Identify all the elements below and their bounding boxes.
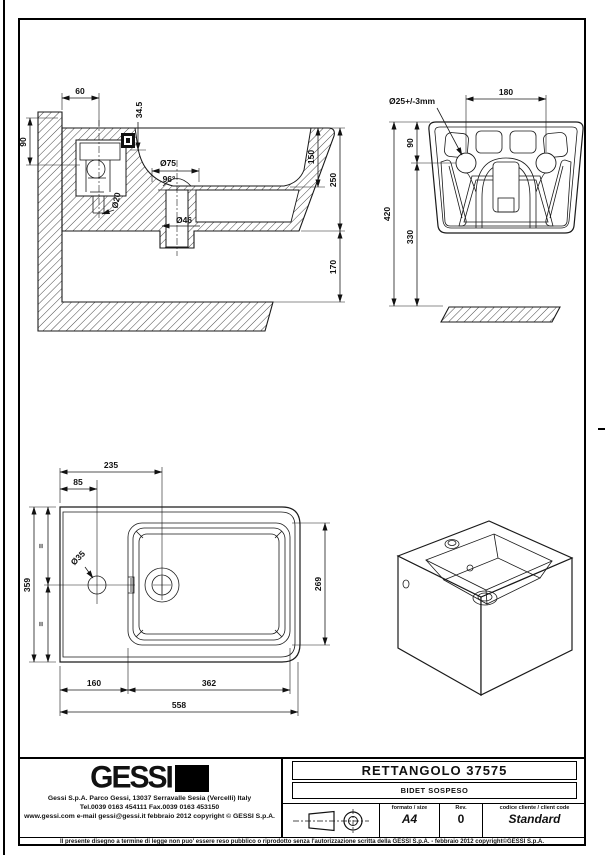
- dim-label: 160: [87, 678, 101, 688]
- company-web: www.gessi.com e-mail gessi@gessi.it febb…: [18, 813, 281, 822]
- isometric-view: [398, 521, 572, 695]
- drawing-views: 60 34.5 90 Ø20 Ø75 96° Ø46 150 250 170: [0, 0, 605, 757]
- dim-label: 90: [18, 137, 28, 147]
- plan-outline: [60, 507, 300, 662]
- mounting-hole-left: [456, 153, 476, 173]
- dim-label: =: [36, 621, 46, 626]
- dim-label: 420: [382, 207, 392, 221]
- dim-label: 150: [306, 150, 316, 164]
- dim-label: 250: [328, 173, 338, 187]
- dim-label: 90: [405, 138, 415, 148]
- logo-square-icon: [175, 765, 209, 792]
- dim-label: 269: [313, 577, 323, 591]
- dim-label: 235: [104, 460, 118, 470]
- dim-label: 180: [499, 87, 513, 97]
- side-section-view: 60 34.5 90 Ø20 Ø75 96° Ø46 150 250 170: [18, 86, 345, 331]
- logo-text: GESSI: [90, 762, 172, 794]
- product-title: RETTANGOLO 37575: [292, 761, 577, 780]
- dim-label: 170: [328, 260, 338, 274]
- dim-label: 34.5: [134, 101, 144, 118]
- format-cell: formato / size A4: [380, 804, 440, 837]
- dim-label: 359: [22, 578, 32, 592]
- title-block-fields: formato / size A4 Rev. 0 codice cliente …: [283, 803, 586, 837]
- first-angle-projection-icon: [291, 809, 371, 833]
- legal-disclaimer: Il presente disegno a termine di legge n…: [18, 837, 586, 846]
- company-cell: GESSI Gessi S.p.A. Parco Gessi, 13037 Se…: [18, 759, 283, 837]
- product-subtitle: BIDET SOSPESO: [292, 782, 577, 799]
- rear-view: 180 Ø25+/-3mm 420 90 330: [382, 87, 583, 322]
- dim-label: 85: [73, 477, 83, 487]
- product-cell: RETTANGOLO 37575 BIDET SOSPESO formato /…: [283, 759, 586, 837]
- dim-label: Ø75: [160, 158, 176, 168]
- dim-label: =: [36, 543, 46, 548]
- dim-label: 60: [75, 86, 85, 96]
- basin-cavity: [135, 128, 311, 186]
- floor-hatch: [441, 307, 560, 322]
- under-cavity: [196, 190, 299, 222]
- projection-symbol-cell: [283, 804, 380, 837]
- client-code-label: codice cliente / client code: [483, 804, 586, 811]
- dim-label: Ø25+/-3mm: [389, 96, 436, 106]
- company-phone: Tel.0039 0163 454111 Fax.0039 0163 45315…: [18, 804, 281, 813]
- dim-label: Ø46: [176, 215, 192, 225]
- dim-label: 96°: [163, 174, 176, 184]
- format-value: A4: [380, 811, 439, 826]
- drain-channel: [493, 162, 519, 212]
- format-label: formato / size: [380, 804, 439, 811]
- dim-label: 362: [202, 678, 216, 688]
- title-block: GESSI Gessi S.p.A. Parco Gessi, 13037 Se…: [18, 757, 586, 837]
- plan-view: 235 85 Ø35 359 = = 269 160 362 558: [22, 460, 330, 716]
- revision-cell: Rev. 0: [440, 804, 483, 837]
- fixing-bracket-core: [126, 138, 130, 143]
- dim-label: 330: [405, 230, 415, 244]
- mounting-hole-right: [536, 153, 556, 173]
- company-address: Gessi S.p.A. Parco Gessi, 13037 Serraval…: [18, 795, 281, 804]
- technical-drawing-sheet: 60 34.5 90 Ø20 Ø75 96° Ø46 150 250 170: [0, 0, 605, 855]
- client-code-cell: codice cliente / client code Standard: [483, 804, 586, 837]
- dim-label: 558: [172, 700, 186, 710]
- revision-value: 0: [440, 811, 482, 826]
- gessi-logo: GESSI: [18, 761, 281, 795]
- faucet-pocket: [76, 140, 126, 196]
- revision-label: Rev.: [440, 804, 482, 811]
- client-code-value: Standard: [483, 811, 586, 826]
